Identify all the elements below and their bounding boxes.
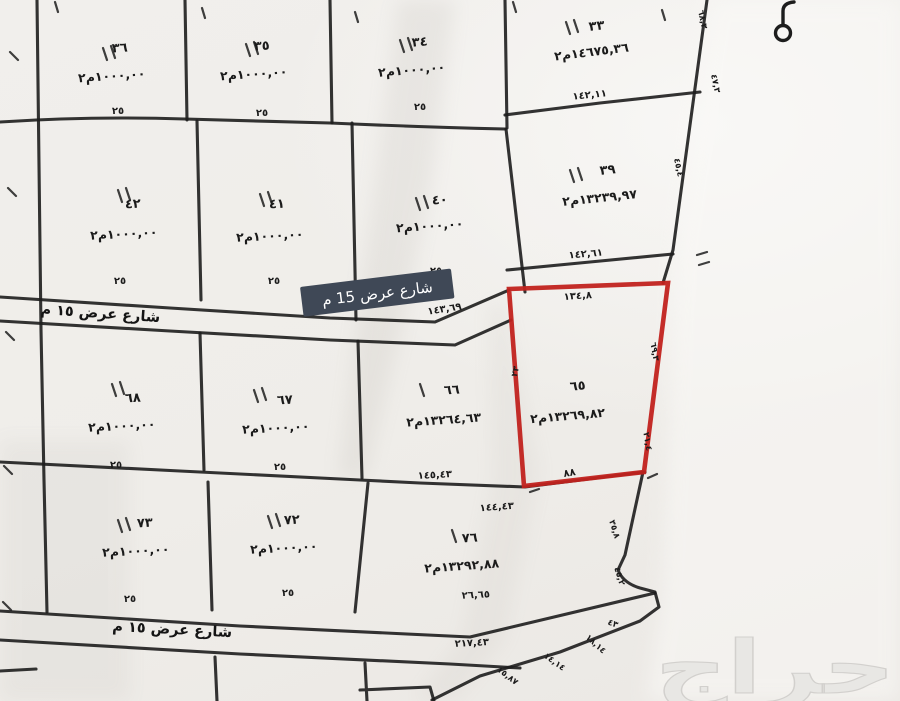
street1-length: ١٤٣,٦٩	[427, 301, 463, 317]
plot-41-area: ١٠٠٠,٠٠م٢	[236, 226, 304, 246]
plot-40-number: ٤٠	[431, 192, 448, 208]
plot-35-number: ٣٥	[253, 38, 270, 54]
plot-35-area: ١٠٠٠,٠٠م٢	[220, 64, 288, 85]
plot-34-number: ٣٤	[411, 34, 428, 50]
plot-72-number: ٧٢	[283, 513, 300, 529]
plot-36-area: ١٠٠٠,٠٠م٢	[78, 66, 146, 87]
plot-65-right-edge-2: ٢١,٤	[640, 432, 653, 452]
plot-72-area: ١٠٠٠,٠٠م٢	[250, 538, 318, 558]
plot-35-width: ٢٥	[256, 108, 268, 119]
plot-65-bottom-note: ٨٨	[563, 467, 577, 480]
plot-73-number: ٧٣	[136, 516, 153, 532]
street1-bottom-line	[0, 320, 511, 345]
scanned-cadastral-map: ٣٦ ١٠٠٠,٠٠م٢ ٢٥ ٣٥ ١٠٠٠,٠٠م٢ ٢٥ ٣٤ ١٠٠٠,…	[0, 0, 900, 701]
plot-72-width: ٢٥	[282, 588, 294, 599]
sep-36-35	[185, 0, 187, 120]
plot-36-number: ٣٦	[111, 40, 128, 56]
row3-segment-length-a: ١٤٥,٤٣	[417, 469, 452, 482]
east-segment-3: ٤٥,٤	[671, 157, 685, 177]
east-light-area	[645, 0, 900, 701]
plot-40-area: ١٠٠٠,٠٠م٢	[396, 216, 464, 237]
sep-42-41	[197, 121, 201, 300]
plot-36-width: ٢٥	[112, 106, 124, 117]
plot-42-number: ٤٢	[124, 197, 141, 213]
plot-68-number: ٦٨	[124, 391, 141, 407]
plot-33-area: ١٤٦٧٥,٣٦م٢	[553, 39, 630, 64]
plot-67-width: ٢٥	[274, 462, 286, 473]
plot-41-width: ٢٥	[268, 276, 280, 287]
corner-shade	[0, 440, 130, 701]
plot-34-width: ٢٥	[414, 102, 426, 113]
plot-65-area: ١٣٢٦٩,٨٢م٢	[530, 405, 606, 428]
plot-65-number: ٦٥	[569, 378, 586, 394]
plot-42-width: ٢٥	[114, 276, 126, 287]
east-segment-5: ٤٥,٢	[611, 566, 627, 588]
plot-39-number: ٣٩	[599, 162, 616, 179]
east-segment-4: ٣٥,٨	[606, 519, 622, 541]
sep-73-72	[208, 482, 212, 610]
plot-33-edge-length: ١٤٢,١١	[572, 88, 607, 103]
street2-length: ٢١٧,٤٣	[454, 637, 489, 650]
plot-73-width: ٢٥	[124, 594, 136, 605]
plot-42-area: ١٠٠٠,٠٠م٢	[90, 224, 158, 244]
street2-handwritten-label: شارع عرض ١٥ م	[112, 619, 233, 641]
plot-68-width: ٢٥	[110, 460, 122, 471]
plot-39-area: ١٣٢٣٩,٩٧م٢	[561, 186, 638, 210]
plot-73-area: ١٠٠٠,٠٠م٢	[102, 541, 170, 561]
plot-68-area: ١٠٠٠,٠٠م٢	[88, 416, 156, 436]
plot-33-number: ٣٣	[588, 18, 605, 35]
haraj-watermark: حراج	[655, 626, 895, 701]
plot-67-area: ١٠٠٠,٠٠م٢	[242, 418, 310, 438]
plot-66-area: ١٣٢٦٤,٦٣م٢	[406, 409, 482, 430]
east-segment-1: ٦٨,٣	[695, 9, 709, 30]
sep-34-33	[505, 0, 507, 128]
sep-35-34	[330, 0, 332, 123]
map-canvas: ٣٦ ١٠٠٠,٠٠م٢ ٢٥ ٣٥ ١٠٠٠,٠٠م٢ ٢٥ ٣٤ ١٠٠٠,…	[0, 0, 900, 701]
plot-39-edge-length: ١٤٢,٦١	[568, 248, 603, 262]
plot-76-edge-length: ٢٦,٦٥	[461, 589, 490, 601]
plot-67-number: ٦٧	[276, 393, 293, 409]
sep-72-76	[355, 483, 368, 612]
plot-66-number: ٦٦	[443, 382, 460, 398]
plot-65-top-edge: ١٣٤,٨	[563, 290, 592, 303]
plot-41-number: ٤١	[268, 197, 285, 213]
sep-68-67	[200, 333, 204, 470]
plot-65-right-edge: ٦٩,٣	[647, 342, 660, 363]
plot-76-number: ٧٦	[461, 530, 478, 546]
